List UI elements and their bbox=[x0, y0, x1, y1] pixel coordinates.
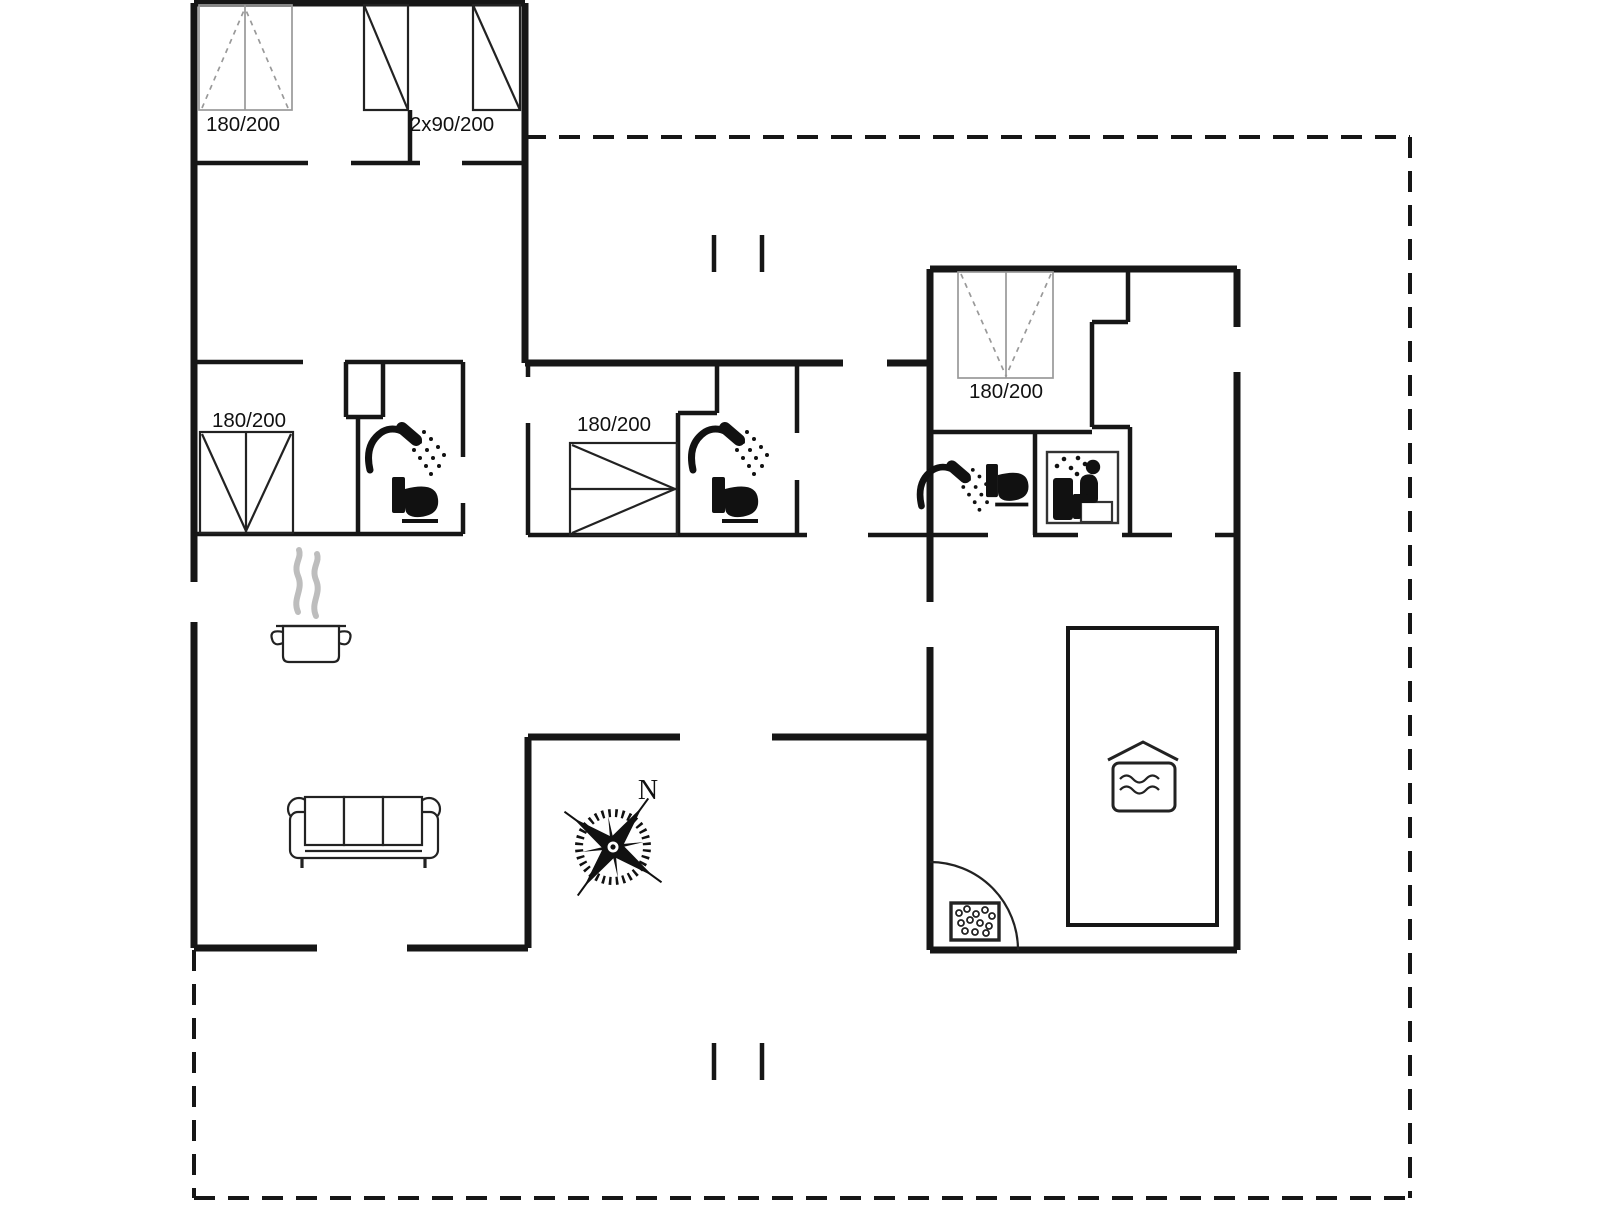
twin-beds-icon bbox=[364, 5, 520, 110]
toilet-icon bbox=[986, 464, 1028, 504]
whirlpool-icon bbox=[951, 903, 999, 940]
bed-double-left-icon bbox=[200, 432, 293, 533]
sofa-icon bbox=[288, 797, 440, 868]
bed-double-right-icon bbox=[958, 272, 1053, 378]
pool-icon bbox=[1108, 742, 1178, 811]
terrace-boundary-dashed bbox=[194, 137, 1410, 1198]
bed-label-right: 180/200 bbox=[969, 380, 1043, 403]
floor-plan-svg: 180/200 2x90/200 180/200 180/200 180/200 bbox=[0, 0, 1606, 1205]
bed-label-middle: 180/200 bbox=[577, 413, 651, 436]
bed-label-twin: 2x90/200 bbox=[410, 113, 494, 136]
sauna-icon bbox=[1047, 452, 1118, 523]
bed-double-top-left-icon bbox=[199, 5, 292, 110]
bed-double-middle-icon bbox=[570, 443, 677, 535]
shower-icon bbox=[369, 428, 447, 476]
toilet-icon bbox=[392, 477, 438, 521]
compass-rose-icon bbox=[529, 763, 697, 931]
toilet-icon bbox=[712, 477, 758, 521]
bed-label-left: 180/200 bbox=[212, 409, 286, 432]
compass-north-label: N bbox=[638, 775, 658, 806]
bed-label-top-left: 180/200 bbox=[206, 113, 280, 136]
shower-icon bbox=[692, 428, 770, 476]
stove-pot-icon bbox=[271, 550, 350, 662]
floor-plan-page: 180/200 2x90/200 180/200 180/200 180/200 bbox=[0, 0, 1606, 1205]
